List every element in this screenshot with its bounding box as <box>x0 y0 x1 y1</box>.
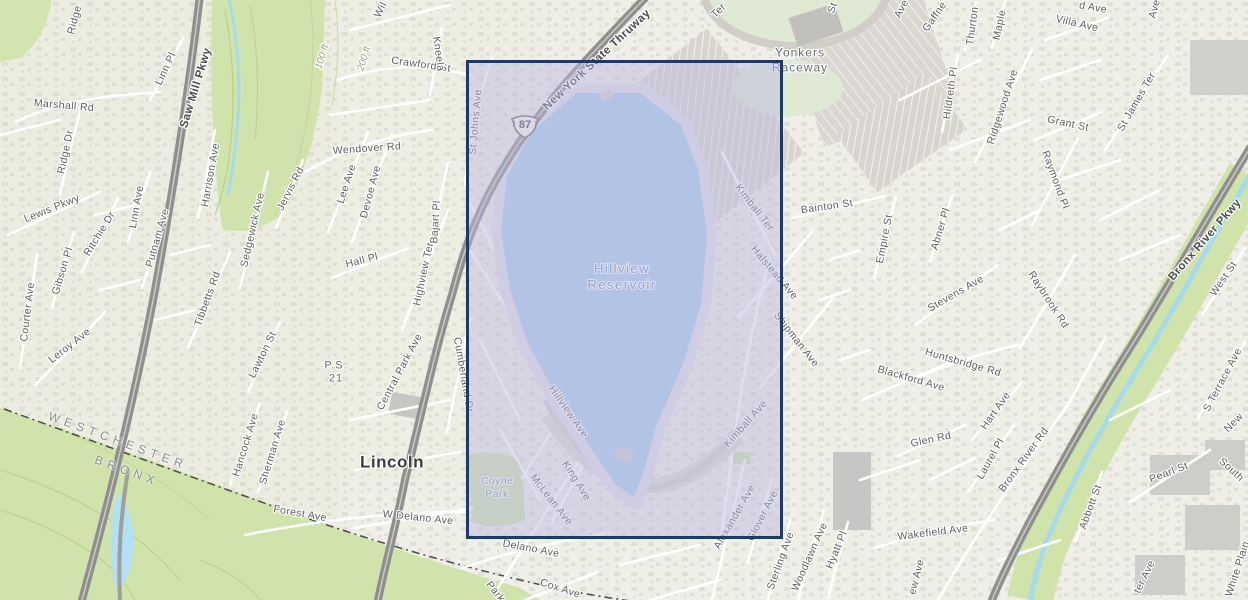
selection-rectangle[interactable] <box>466 60 783 539</box>
map-canvas[interactable]: 87 Marshall RdLinn PlRidgeRidge DrLewis … <box>0 0 1248 600</box>
